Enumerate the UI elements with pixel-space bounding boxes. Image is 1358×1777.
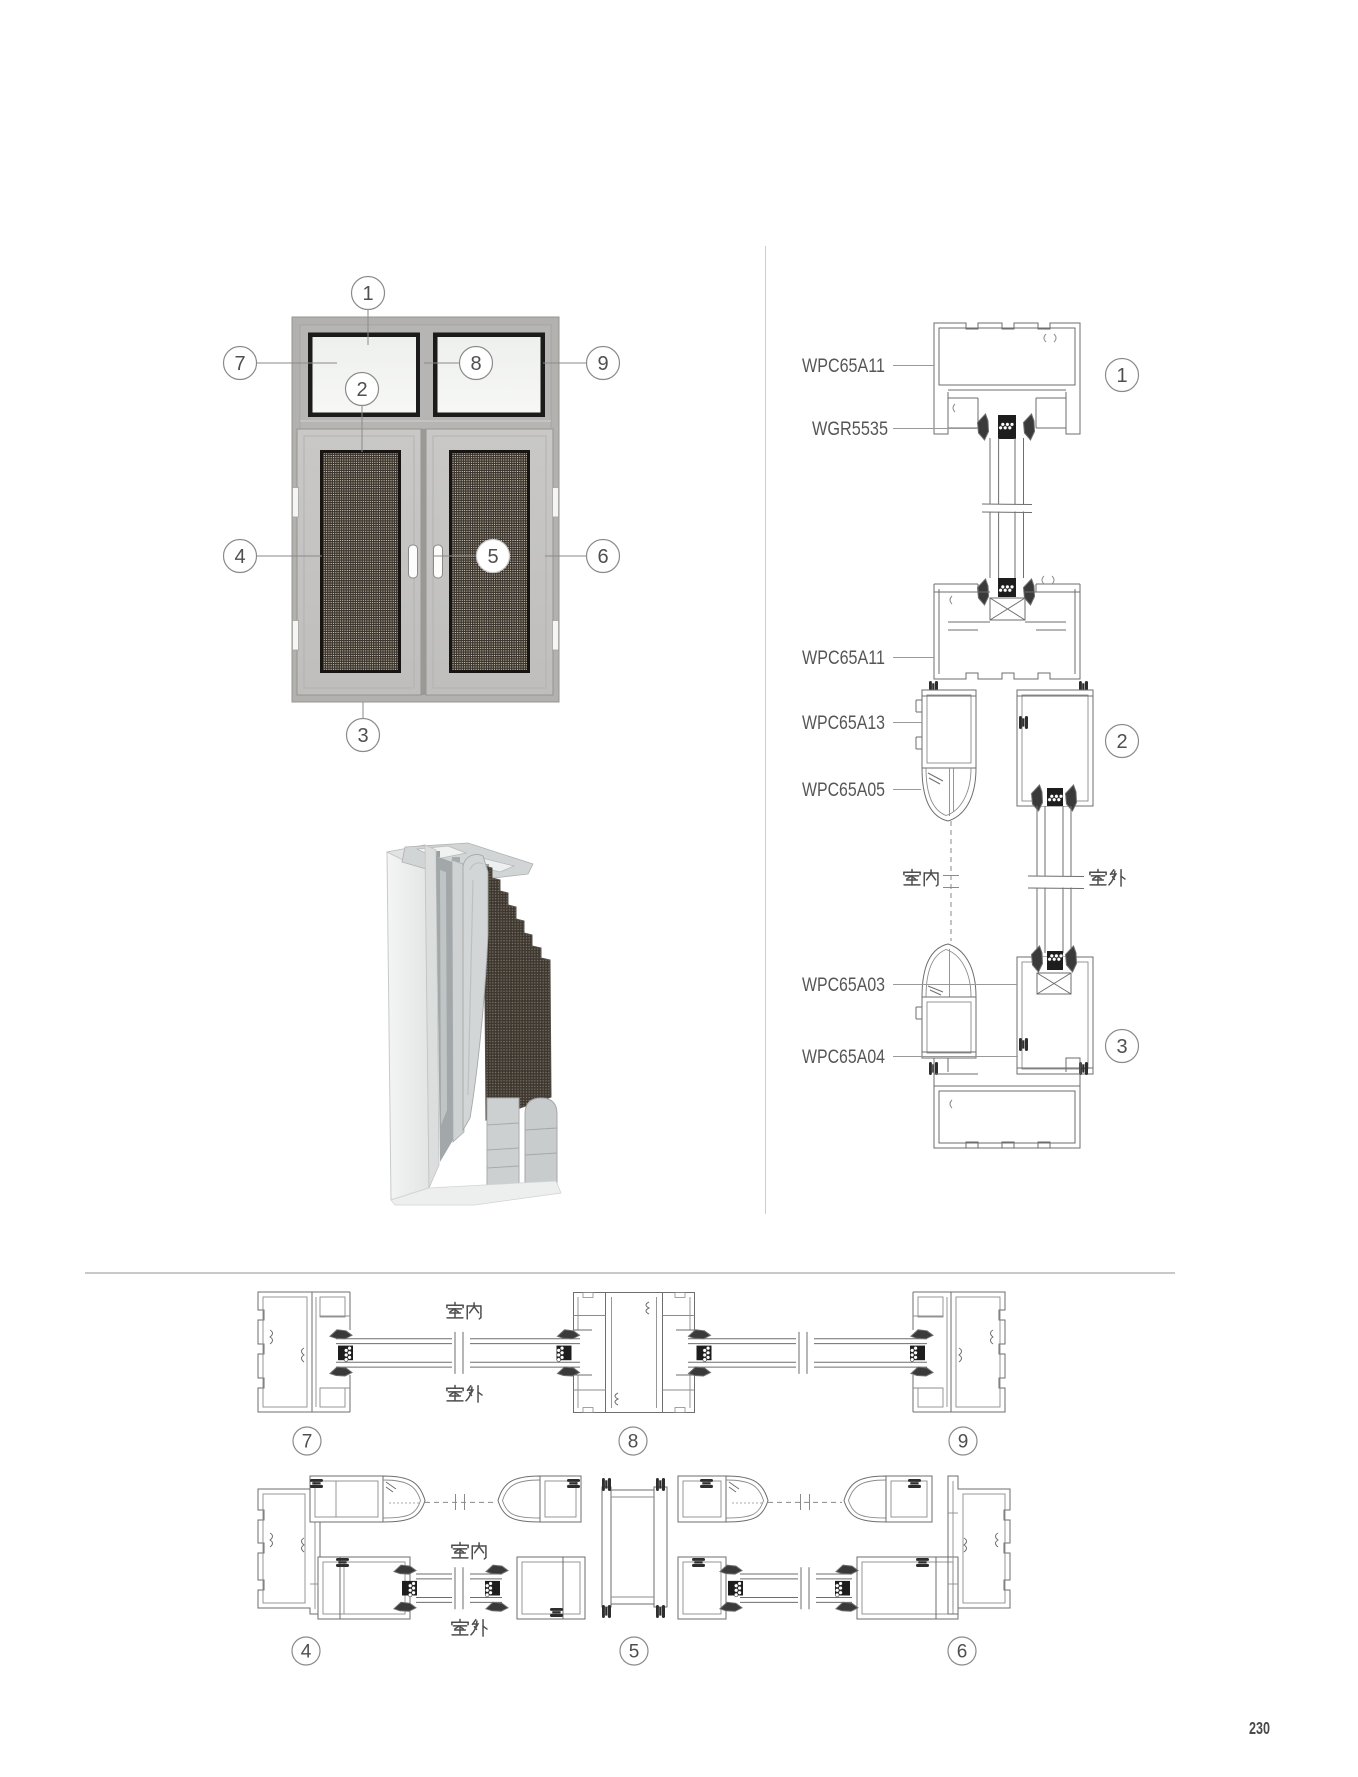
svg-text:1: 1	[1116, 365, 1127, 387]
svg-text:WPC65A04: WPC65A04	[802, 1047, 885, 1068]
svg-text:9: 9	[597, 353, 608, 375]
svg-text:WPC65A05: WPC65A05	[802, 780, 885, 801]
svg-text:WPC65A11: WPC65A11	[802, 648, 885, 669]
svg-text:5: 5	[487, 546, 498, 568]
svg-text:8: 8	[470, 353, 481, 375]
svg-text:WPC65A11: WPC65A11	[802, 356, 885, 377]
svg-text:230: 230	[1249, 1718, 1270, 1738]
svg-text:8: 8	[628, 1432, 639, 1453]
svg-text:3: 3	[357, 725, 368, 747]
svg-text:WGR5535: WGR5535	[812, 419, 888, 440]
svg-text:9: 9	[958, 1432, 969, 1453]
svg-text:4: 4	[234, 546, 245, 568]
svg-text:6: 6	[597, 546, 608, 568]
svg-text:7: 7	[234, 353, 245, 375]
svg-text:6: 6	[957, 1642, 968, 1663]
svg-text:WPC65A13: WPC65A13	[802, 713, 885, 734]
svg-text:WPC65A03: WPC65A03	[802, 975, 885, 996]
svg-text:3: 3	[1116, 1036, 1127, 1058]
svg-text:4: 4	[301, 1642, 312, 1663]
svg-text:5: 5	[629, 1642, 640, 1663]
svg-text:7: 7	[302, 1432, 313, 1453]
svg-text:2: 2	[1116, 731, 1127, 753]
svg-text:2: 2	[356, 379, 367, 401]
svg-text:1: 1	[362, 283, 373, 305]
